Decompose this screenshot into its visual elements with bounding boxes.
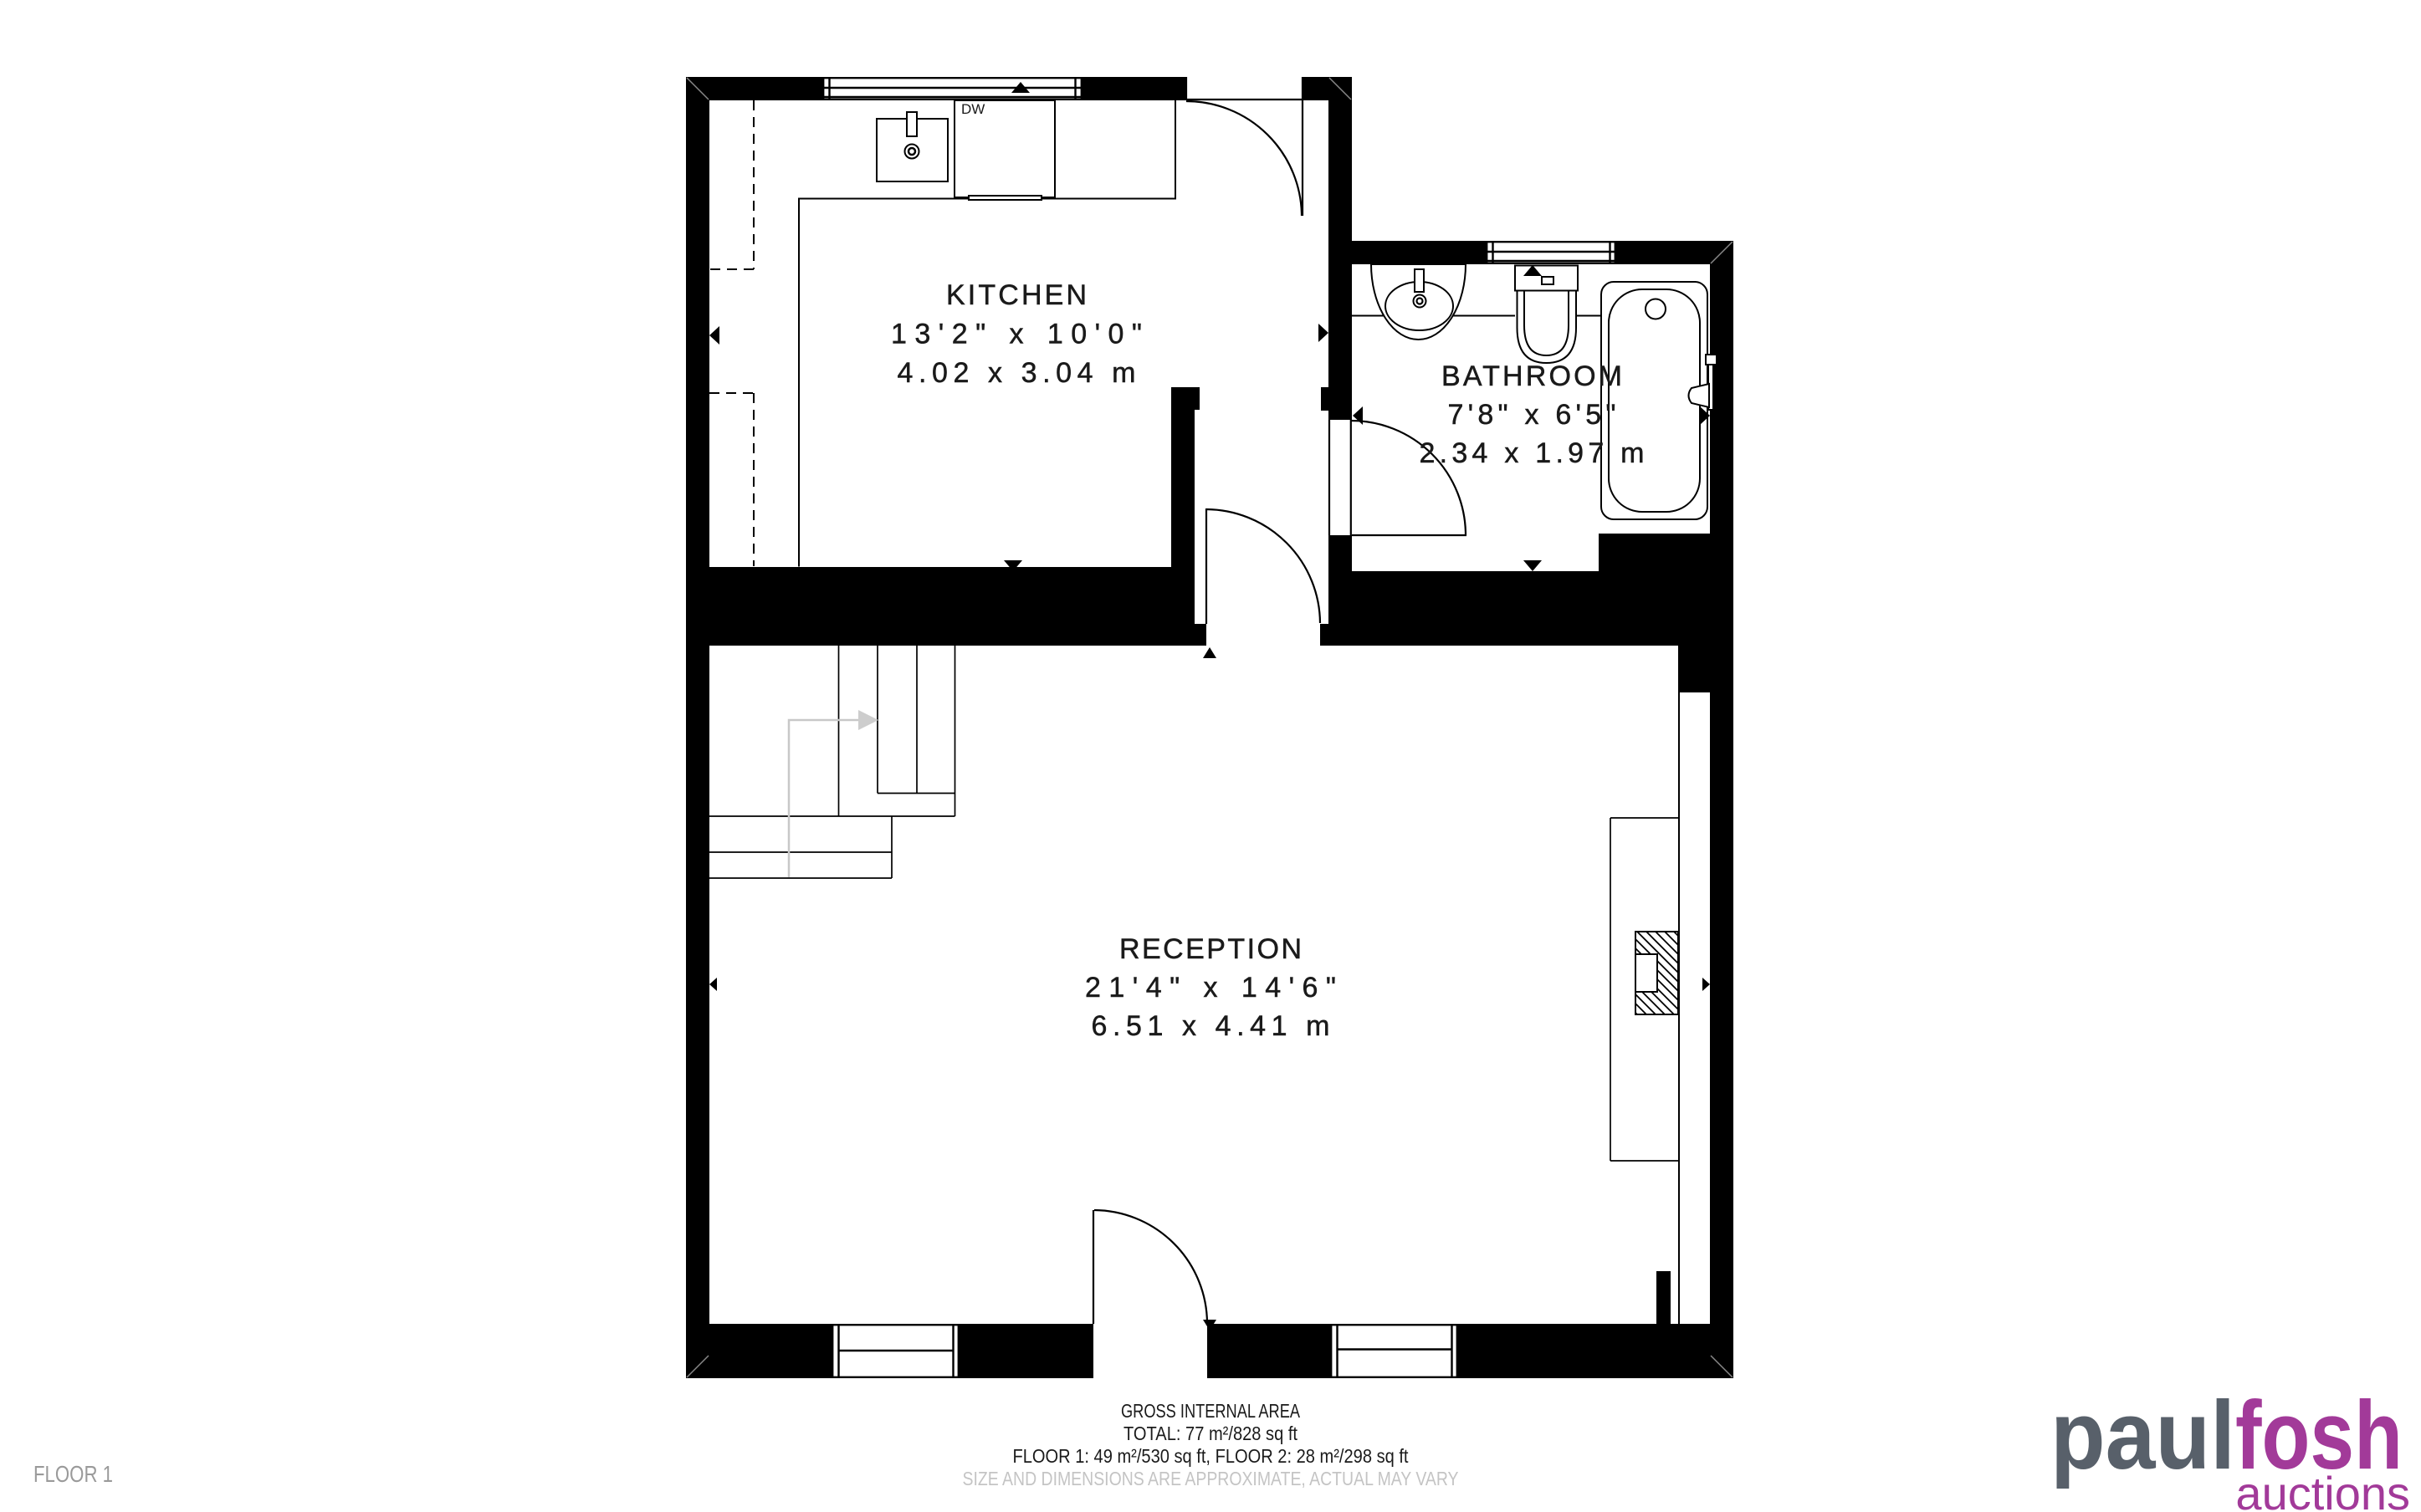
svg-text:paul: paul <box>2050 1381 2235 1489</box>
svg-text:TOTAL: 77 m²/828 sq ft: TOTAL: 77 m²/828 sq ft <box>1123 1423 1298 1444</box>
svg-text:KITCHEN: KITCHEN <box>946 279 1087 311</box>
svg-text:FLOOR 1: FLOOR 1 <box>33 1461 113 1487</box>
svg-text:auctions: auctions <box>2235 1467 2410 1512</box>
svg-text:DW: DW <box>961 101 985 117</box>
svg-text:BATHROOM: BATHROOM <box>1441 360 1622 392</box>
svg-text:GROSS INTERNAL AREA: GROSS INTERNAL AREA <box>1121 1400 1301 1422</box>
svg-text:7'8" x 6'5": 7'8" x 6'5" <box>1448 399 1616 431</box>
svg-text:SIZE AND DIMENSIONS ARE APPROX: SIZE AND DIMENSIONS ARE APPROXIMATE, ACT… <box>963 1468 1459 1489</box>
svg-text:FLOOR 1: 49 m²/530 sq ft, FLOO: FLOOR 1: 49 m²/530 sq ft, FLOOR 2: 28 m²… <box>1013 1445 1410 1467</box>
svg-text:RECEPTION: RECEPTION <box>1119 933 1302 965</box>
